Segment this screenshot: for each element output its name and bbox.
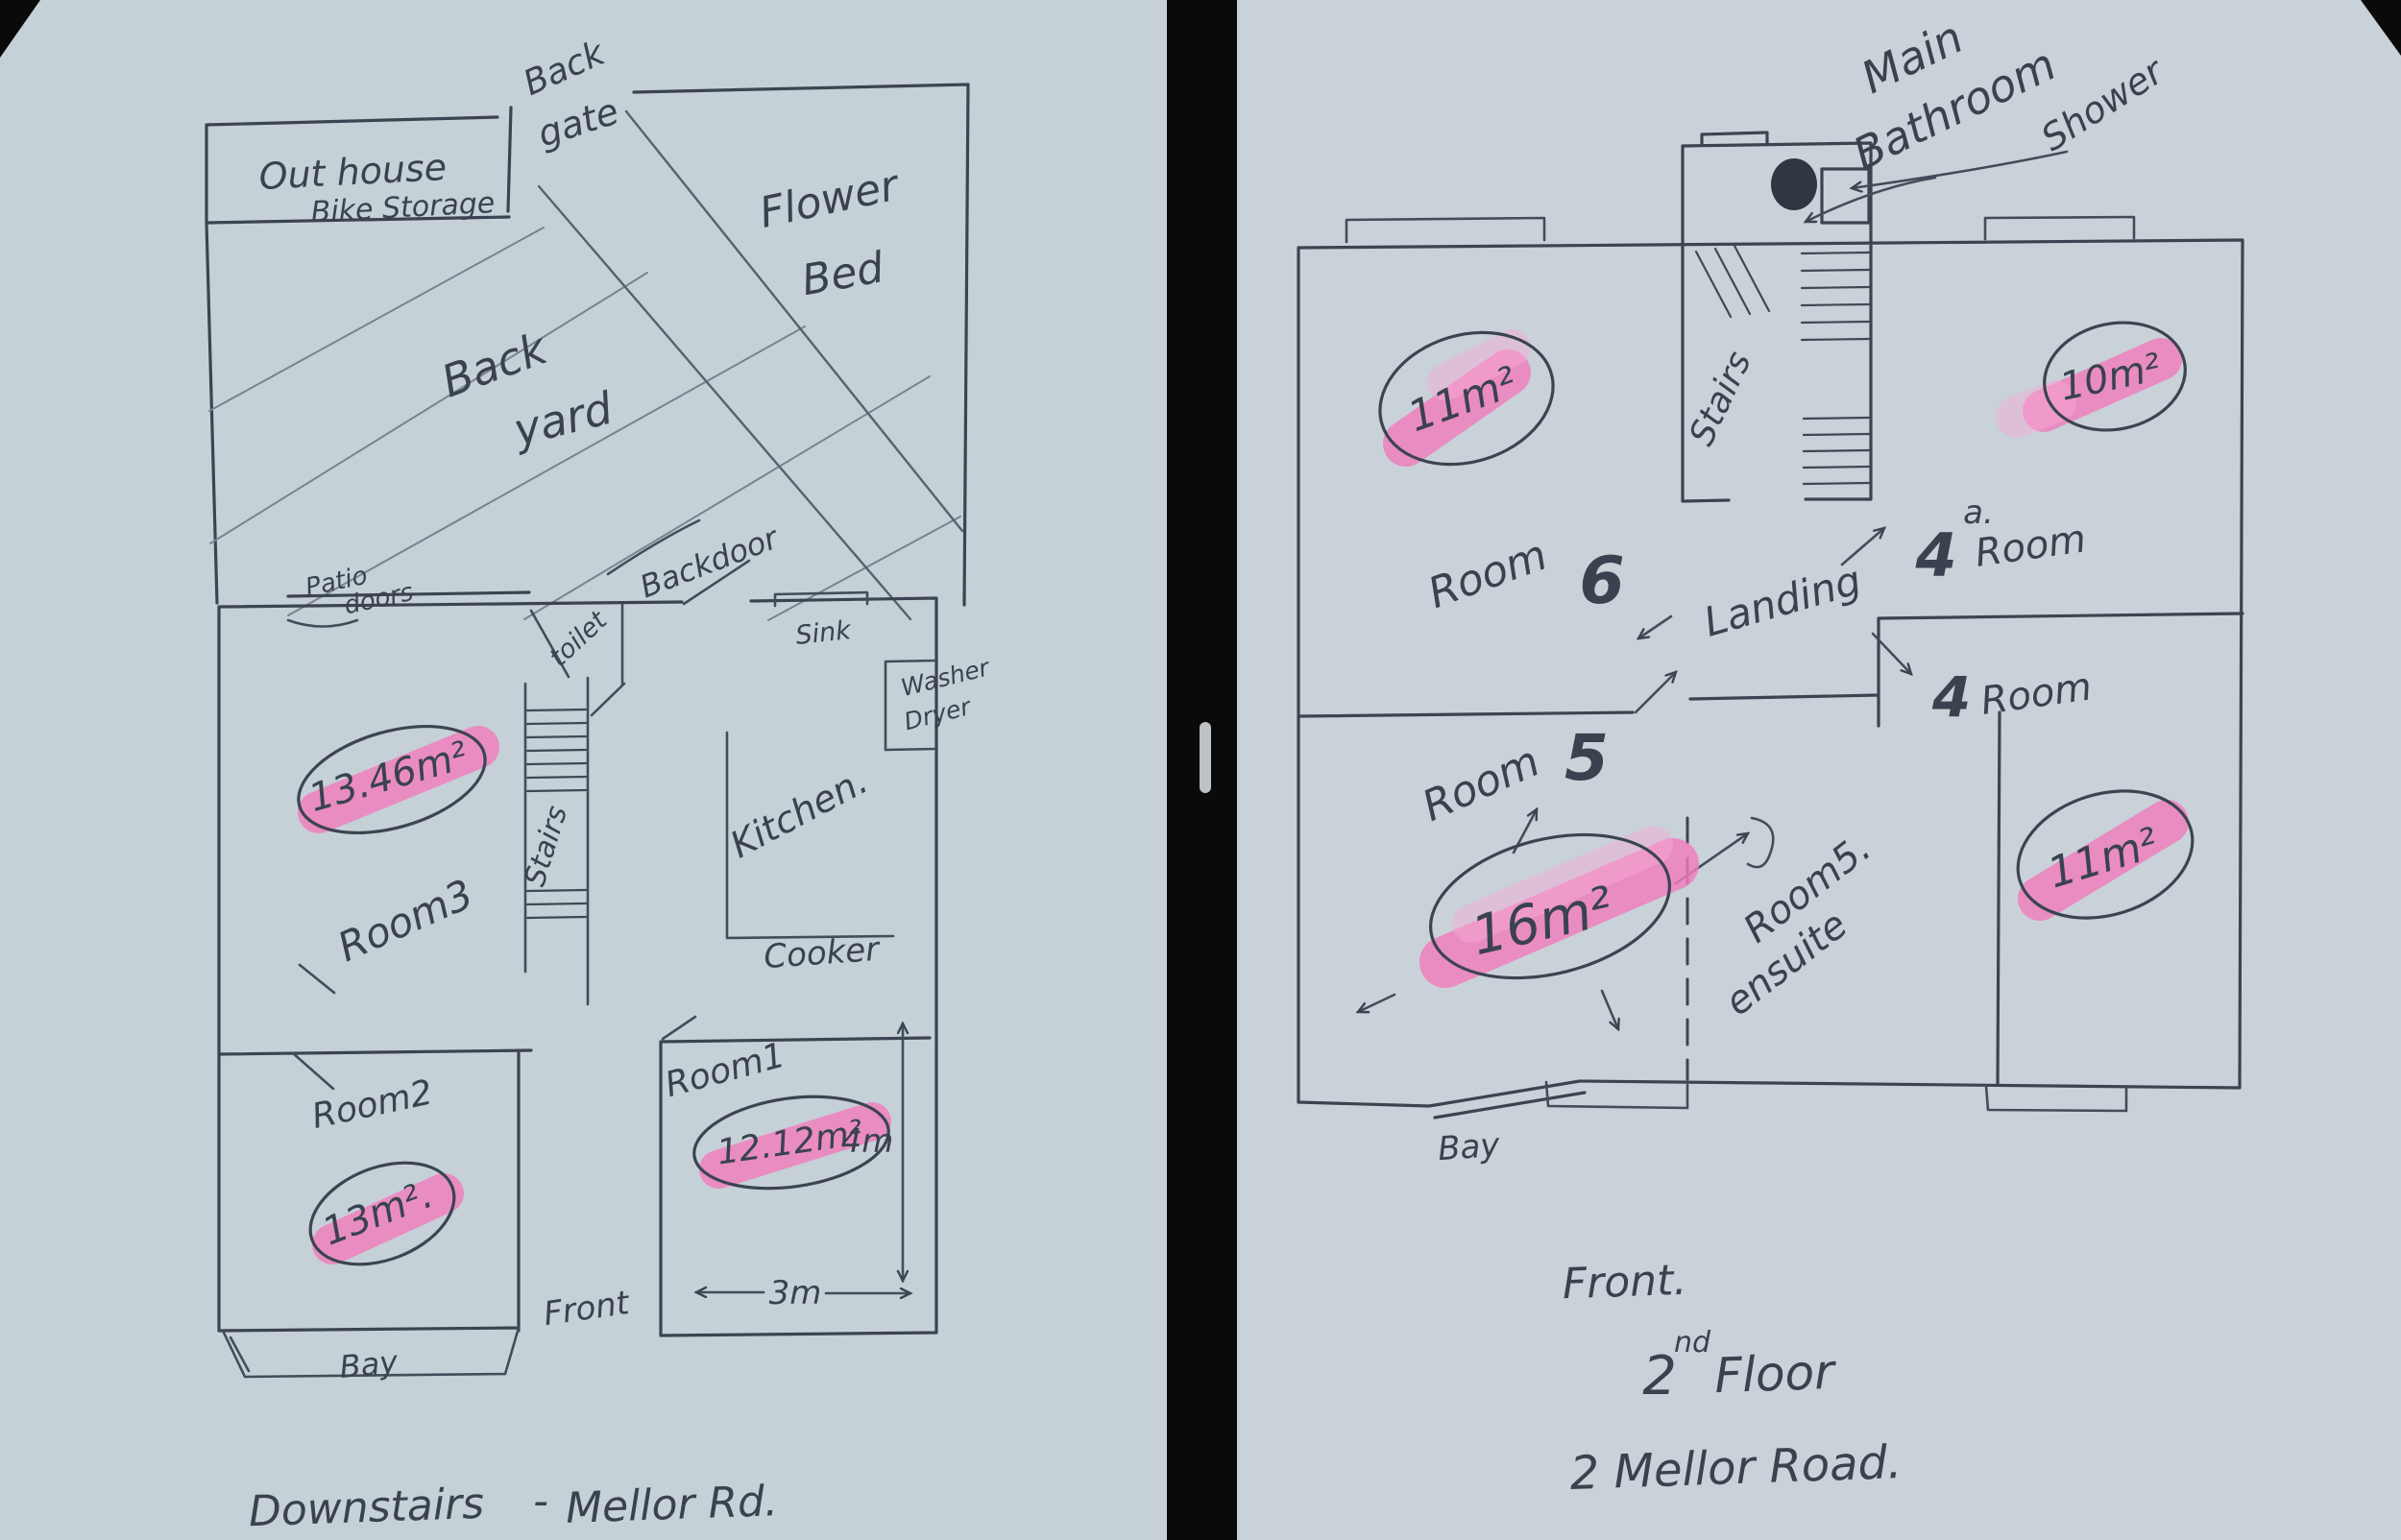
toilet-symbol — [1771, 158, 1817, 210]
width-dimension-value: 3m — [769, 1274, 822, 1312]
bay-label-left: Bay — [338, 1343, 400, 1385]
left-caption-word1: Downstairs — [248, 1480, 485, 1537]
right-caption-front: Front. — [1562, 1256, 1687, 1309]
right-caption-floor-word: Floor — [1713, 1344, 1838, 1404]
room4a-number: 4 — [1914, 520, 1956, 590]
bay-label-right: Bay — [1437, 1126, 1502, 1168]
right-caption-floor-ordinal: nd — [1674, 1326, 1711, 1360]
sketch-canvas: Out house Bike Storage Back gate Flower … — [0, 0, 2401, 1540]
cooker-label: Cooker — [763, 930, 882, 976]
gap-reflection-mark — [1200, 722, 1211, 793]
room4a-suffix: a. — [1963, 493, 1994, 532]
left-caption-word2: Mellor Rd. — [565, 1477, 779, 1533]
right-paper-sheet — [1237, 0, 2401, 1540]
room6-number: 6 — [1579, 543, 1624, 619]
room4-number: 4 — [1931, 664, 1971, 730]
room5-number: 5 — [1564, 721, 1609, 795]
photo-of-floorplan-sketches: Out house Bike Storage Back gate Flower … — [0, 0, 2401, 1540]
left-caption-dash: - — [533, 1477, 548, 1526]
sink-label: Sink — [794, 615, 854, 651]
right-caption-floor-number: 2 — [1642, 1345, 1677, 1408]
height-dimension-value: 4m — [841, 1122, 894, 1161]
